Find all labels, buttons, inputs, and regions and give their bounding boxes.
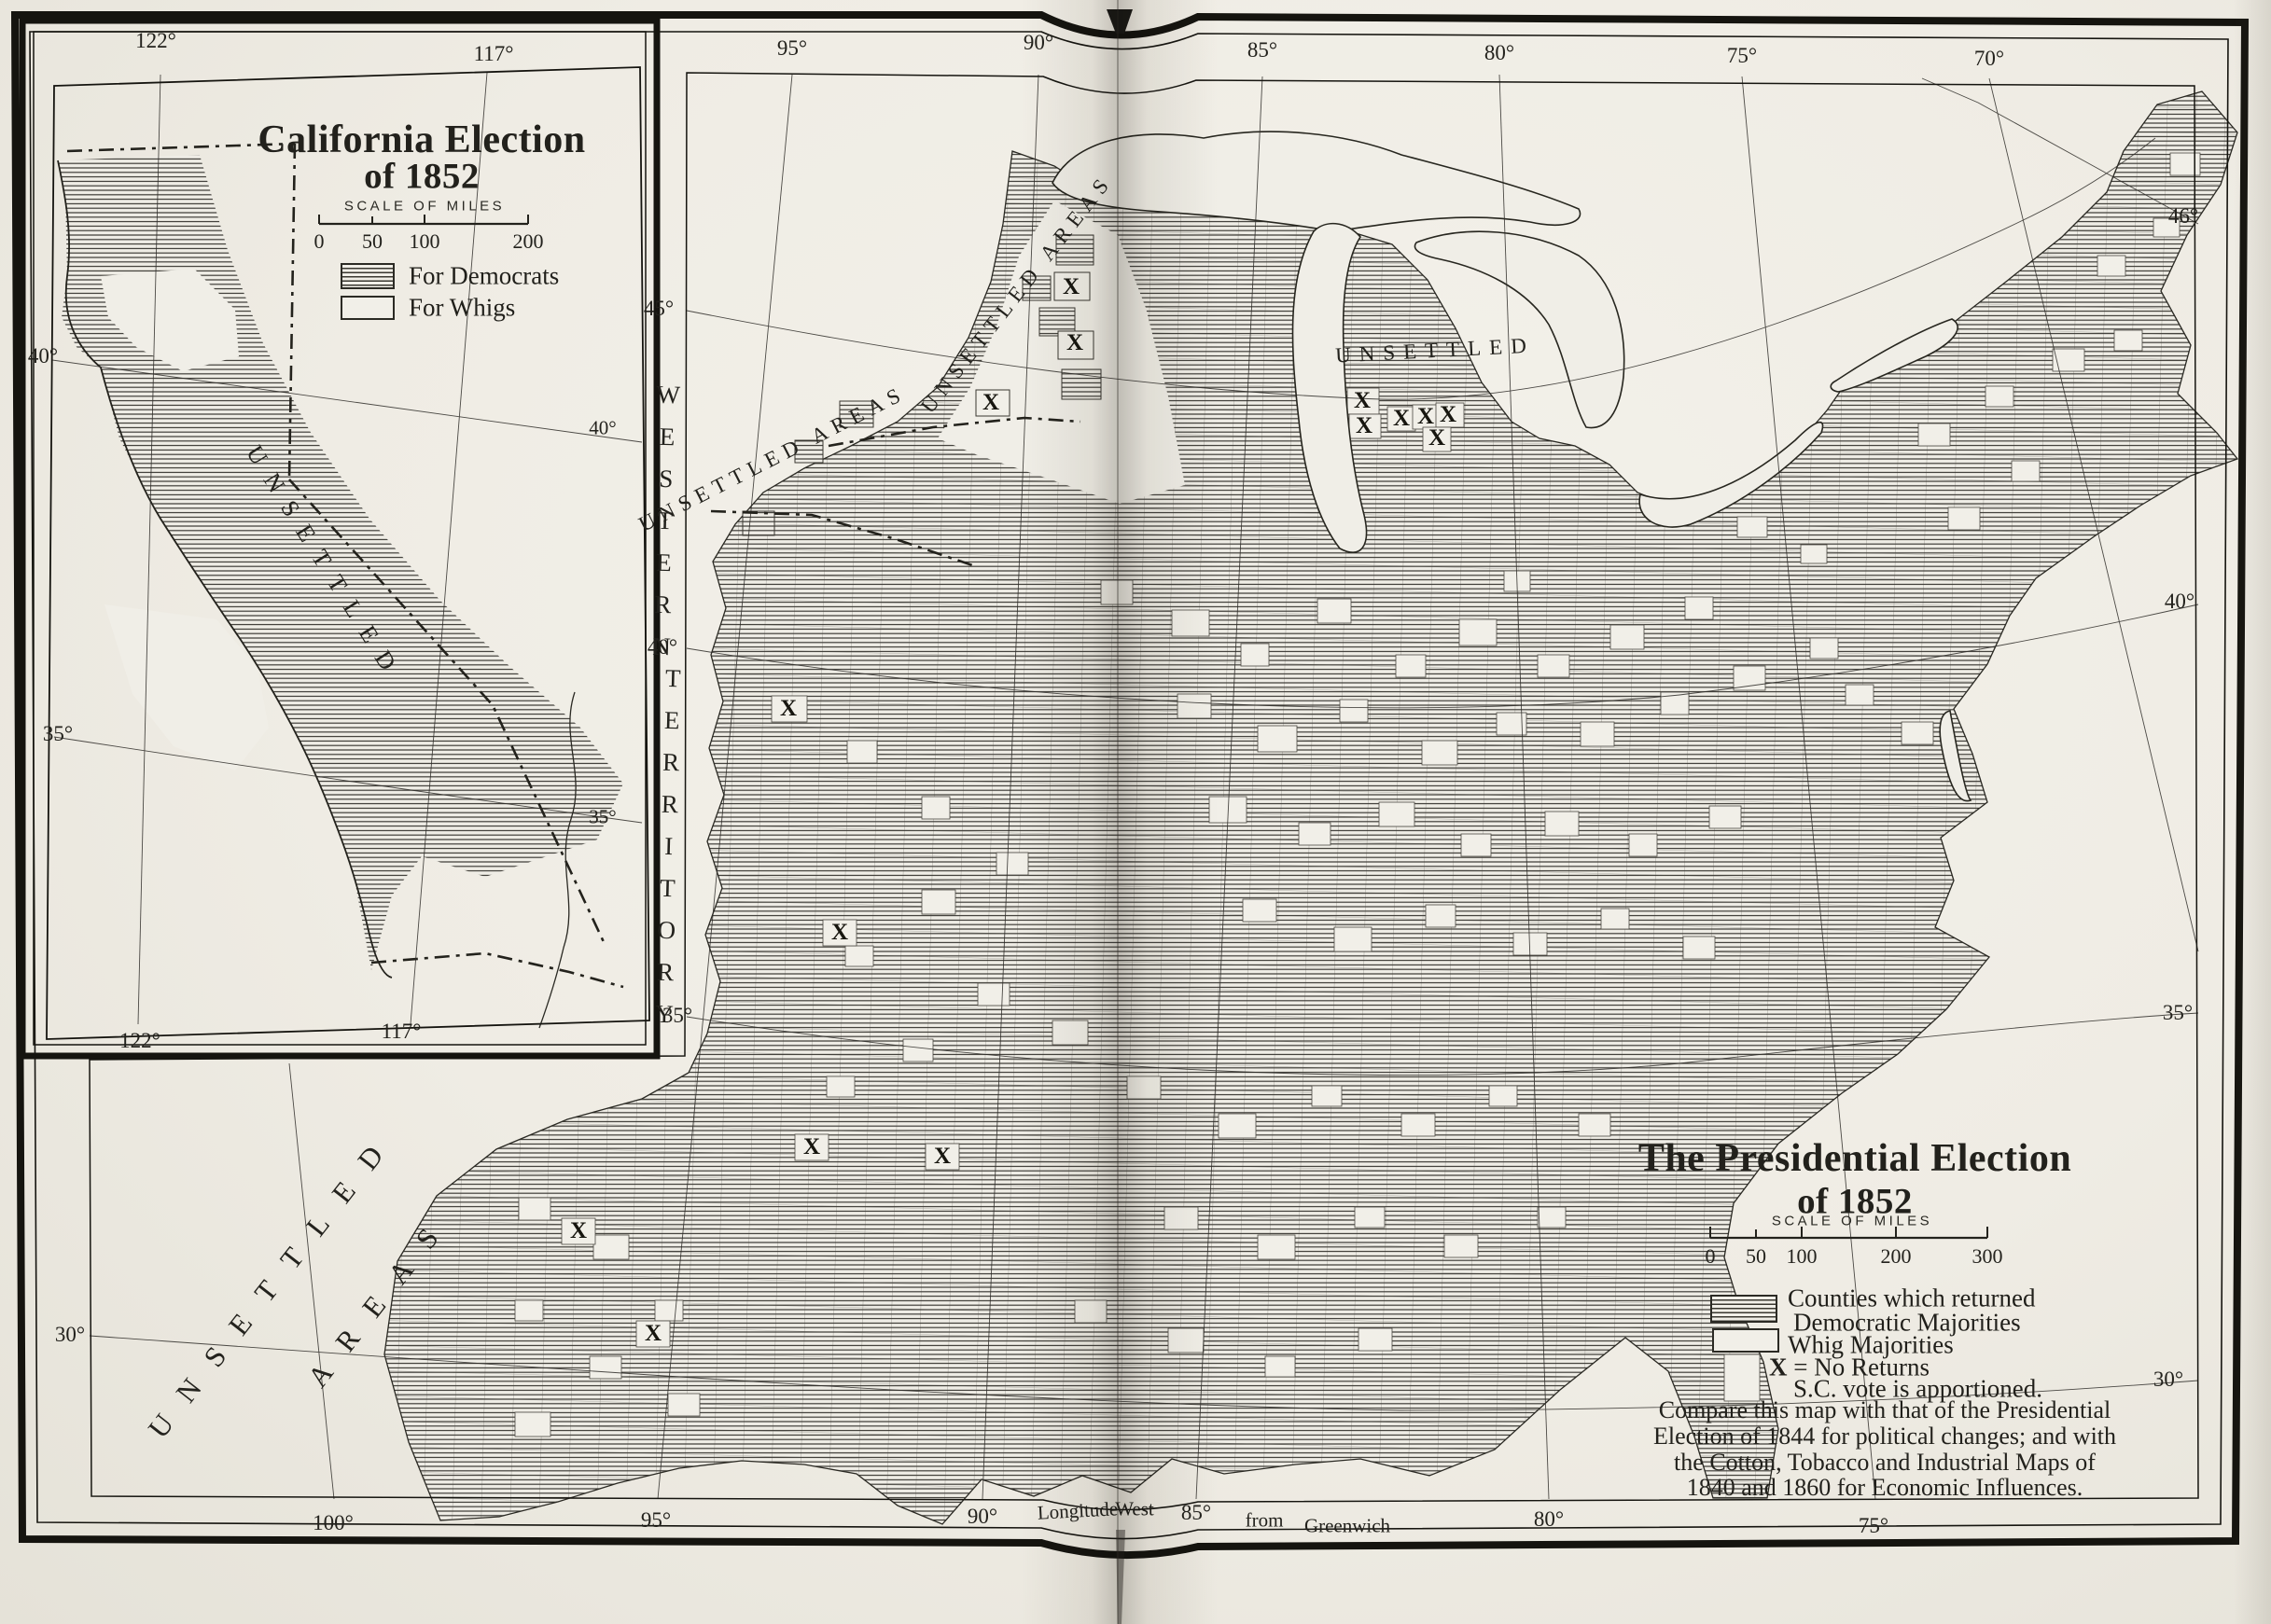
latitude-left-45: 45° bbox=[644, 297, 674, 321]
inset-title-line2: of 1852 bbox=[364, 156, 480, 198]
inset-whig-swatch bbox=[341, 296, 395, 320]
compare-note-line3: the Cotton, Tobacco and Industrial Maps … bbox=[1674, 1449, 2096, 1477]
compare-note-line1: Compare this map with that of the Presid… bbox=[1659, 1396, 2111, 1424]
longitude-top-90: 90° bbox=[1024, 31, 1053, 55]
inset-democrat-label: For Democrats bbox=[409, 262, 559, 291]
longitude-caption-longitude: Longitude bbox=[1037, 1497, 1119, 1524]
latitude-right-35: 35° bbox=[2163, 1001, 2193, 1025]
main-scale-tick-300: 300 bbox=[1972, 1244, 2003, 1269]
longitude-bottom-75: 75° bbox=[1859, 1514, 1888, 1538]
main-title-line1: The Presidential Election bbox=[1638, 1136, 2071, 1181]
longitude-top-75: 75° bbox=[1727, 44, 1757, 68]
compare-note-line2: Election of 1844 for political changes; … bbox=[1653, 1423, 2116, 1450]
california-inset-map bbox=[52, 73, 642, 1028]
latitude-right-30: 30° bbox=[2153, 1367, 2183, 1392]
longitude-bottom-95: 95° bbox=[641, 1508, 671, 1533]
main-whig-swatch bbox=[1712, 1328, 1779, 1353]
no-returns-mark: X bbox=[1354, 388, 1371, 414]
longitude-top-80: 80° bbox=[1484, 41, 1514, 65]
latitude-left-30: 30° bbox=[55, 1323, 85, 1347]
no-returns-mark: X bbox=[982, 390, 999, 416]
main-scale-tick-200: 200 bbox=[1881, 1244, 1912, 1269]
no-returns-mark: X bbox=[1356, 413, 1372, 439]
inset-scale-tick-200: 200 bbox=[513, 229, 544, 254]
inset-scale-bar bbox=[319, 215, 528, 224]
inset-scale-tick-50: 50 bbox=[362, 229, 383, 254]
no-returns-mark: X bbox=[1440, 402, 1456, 428]
inset-scale-tick-100: 100 bbox=[410, 229, 440, 254]
no-returns-mark: X bbox=[934, 1144, 951, 1170]
inset-longitude-bottom-122: 122° bbox=[119, 1029, 160, 1053]
longitude-caption-west: West bbox=[1115, 1498, 1153, 1521]
inset-latitude-left-35: 35° bbox=[43, 722, 73, 746]
longitude-bottom-80: 80° bbox=[1534, 1507, 1564, 1532]
inset-latitude-inner-40: 40° bbox=[589, 417, 616, 440]
main-democrat-swatch bbox=[1710, 1295, 1777, 1323]
no-returns-mark: X bbox=[1393, 406, 1410, 432]
longitude-top-70: 70° bbox=[1974, 47, 2004, 71]
inset-latitude-left-40: 40° bbox=[28, 344, 58, 368]
inset-longitude-bottom-117: 117° bbox=[382, 1020, 422, 1044]
main-scale-tick-100: 100 bbox=[1787, 1244, 1818, 1269]
fold-tear-bottom bbox=[1116, 1530, 1125, 1624]
compare-note-line4: 1840 and 1860 for Economic Influences. bbox=[1687, 1474, 2083, 1502]
inset-whig-label: For Whigs bbox=[409, 294, 515, 323]
no-returns-mark: X bbox=[831, 920, 848, 946]
longitude-top-95: 95° bbox=[777, 36, 807, 61]
no-returns-mark: X bbox=[645, 1321, 662, 1347]
longitude-bottom-85: 85° bbox=[1181, 1501, 1211, 1525]
inset-scale-caption: Scale of Miles bbox=[344, 199, 505, 215]
inset-scale-tick-0: 0 bbox=[314, 229, 325, 254]
main-scale-caption: Scale of Miles bbox=[1772, 1214, 1932, 1229]
inset-democrat-swatch bbox=[341, 263, 395, 289]
no-returns-mark: X bbox=[1066, 330, 1083, 356]
no-returns-mark: X bbox=[570, 1218, 587, 1244]
longitude-bottom-90: 90° bbox=[968, 1505, 997, 1529]
inset-latitude-inner-35: 35° bbox=[589, 806, 616, 829]
longitude-top-85: 85° bbox=[1247, 38, 1277, 62]
longitude-bottom-100: 100° bbox=[313, 1511, 354, 1535]
no-returns-symbol: X bbox=[1769, 1353, 1788, 1381]
no-returns-mark: X bbox=[1063, 274, 1080, 300]
main-scale-tick-50: 50 bbox=[1746, 1244, 1766, 1269]
latitude-left-40: 40° bbox=[648, 635, 677, 659]
longitude-caption-from: from bbox=[1246, 1509, 1284, 1533]
main-scale-tick-0: 0 bbox=[1706, 1244, 1716, 1269]
latitude-right-40: 40° bbox=[2165, 590, 2194, 614]
no-returns-mark: X bbox=[780, 696, 797, 722]
latitude-right-46: 46° bbox=[2168, 204, 2198, 229]
longitude-caption-greenwich: Greenwich bbox=[1304, 1515, 1390, 1538]
no-returns-mark: X bbox=[803, 1134, 820, 1160]
inset-longitude-top-122: 122° bbox=[135, 29, 176, 53]
scanned-atlas-page: California Election of 1852 Scale of Mil… bbox=[0, 0, 2271, 1624]
inset-longitude-top-117: 117° bbox=[474, 42, 514, 66]
fold-notch-top bbox=[1107, 9, 1133, 34]
no-returns-mark: X bbox=[1428, 425, 1445, 451]
latitude-left-35: 35° bbox=[662, 1004, 692, 1028]
